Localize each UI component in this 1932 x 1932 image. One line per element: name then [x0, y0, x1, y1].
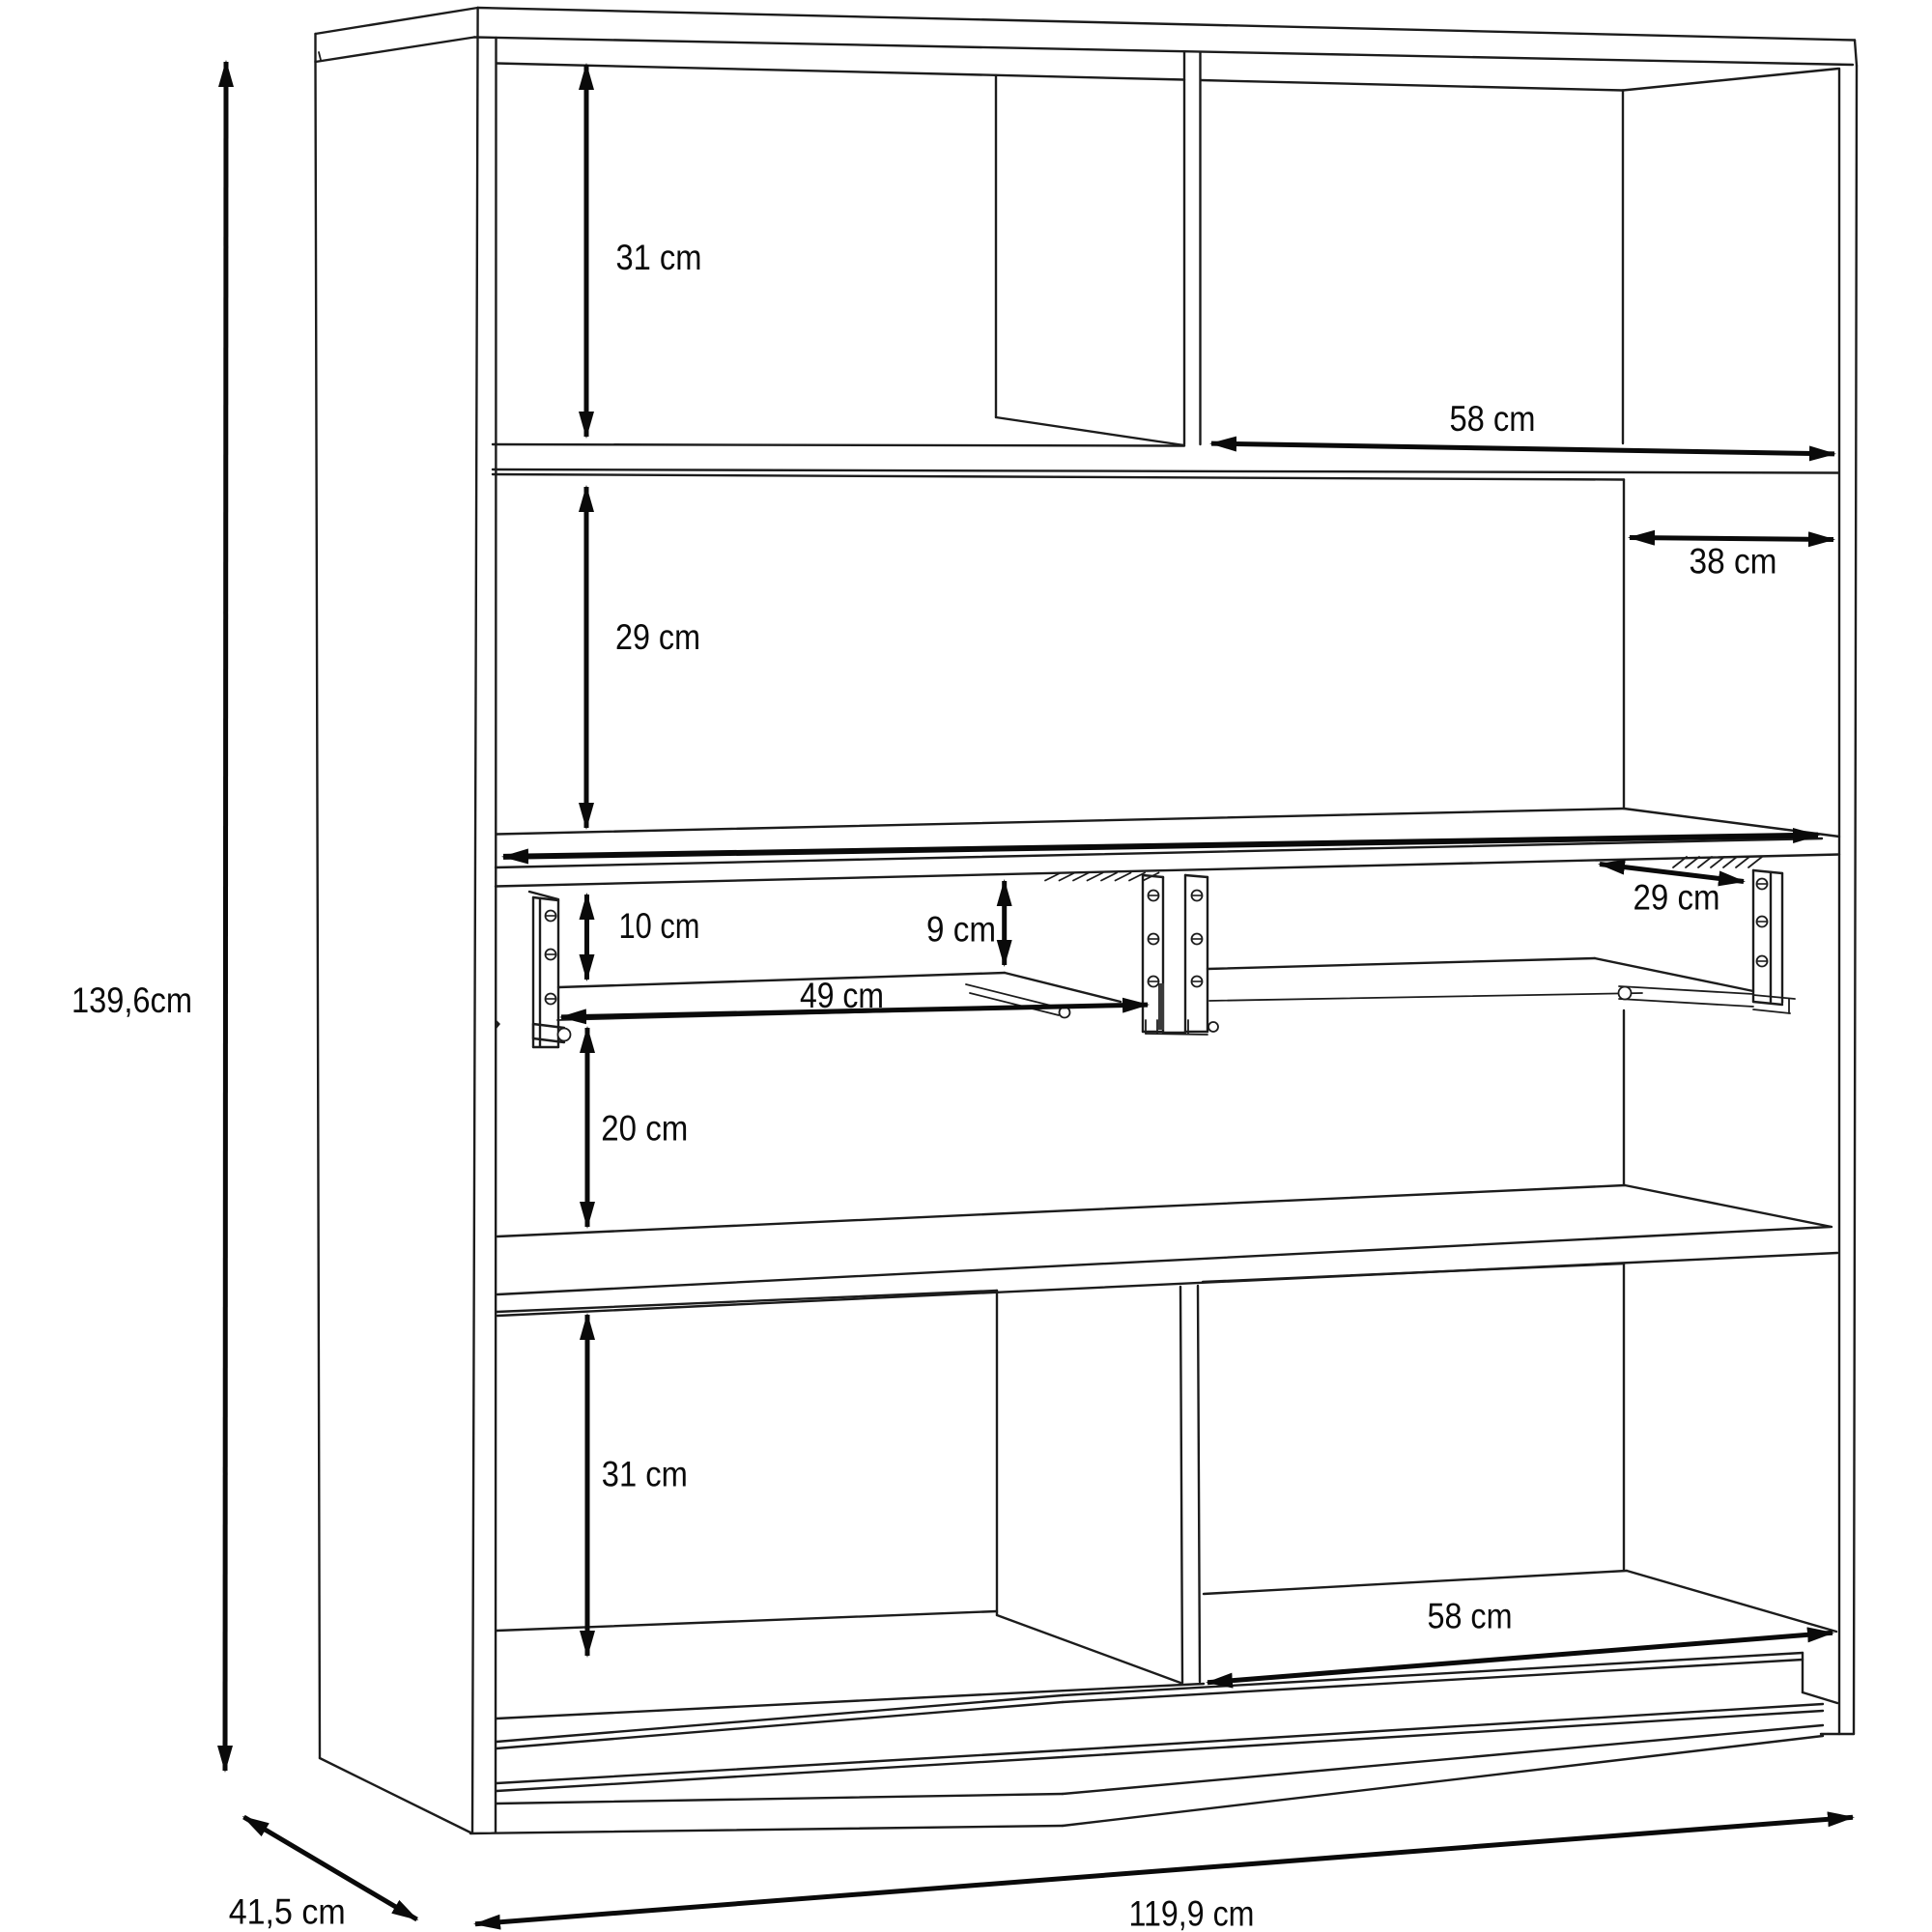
svg-text:139,6cm: 139,6cm — [71, 980, 192, 1020]
svg-text:38 cm: 38 cm — [1690, 542, 1777, 582]
svg-text:58 cm: 58 cm — [1428, 1597, 1513, 1636]
svg-text:29 cm: 29 cm — [615, 617, 700, 657]
svg-text:31 cm: 31 cm — [602, 1455, 688, 1494]
svg-text:31 cm: 31 cm — [616, 238, 702, 277]
svg-text:58 cm: 58 cm — [1450, 399, 1536, 439]
svg-text:9 cm: 9 cm — [926, 910, 996, 950]
svg-text:49 cm: 49 cm — [800, 976, 884, 1015]
svg-text:20 cm: 20 cm — [601, 1108, 688, 1148]
svg-text:41,5 cm: 41,5 cm — [229, 1891, 346, 1931]
svg-text:10 cm: 10 cm — [619, 906, 700, 946]
svg-text:29 cm: 29 cm — [1634, 878, 1720, 918]
svg-text:119,9 cm: 119,9 cm — [1129, 1894, 1255, 1932]
